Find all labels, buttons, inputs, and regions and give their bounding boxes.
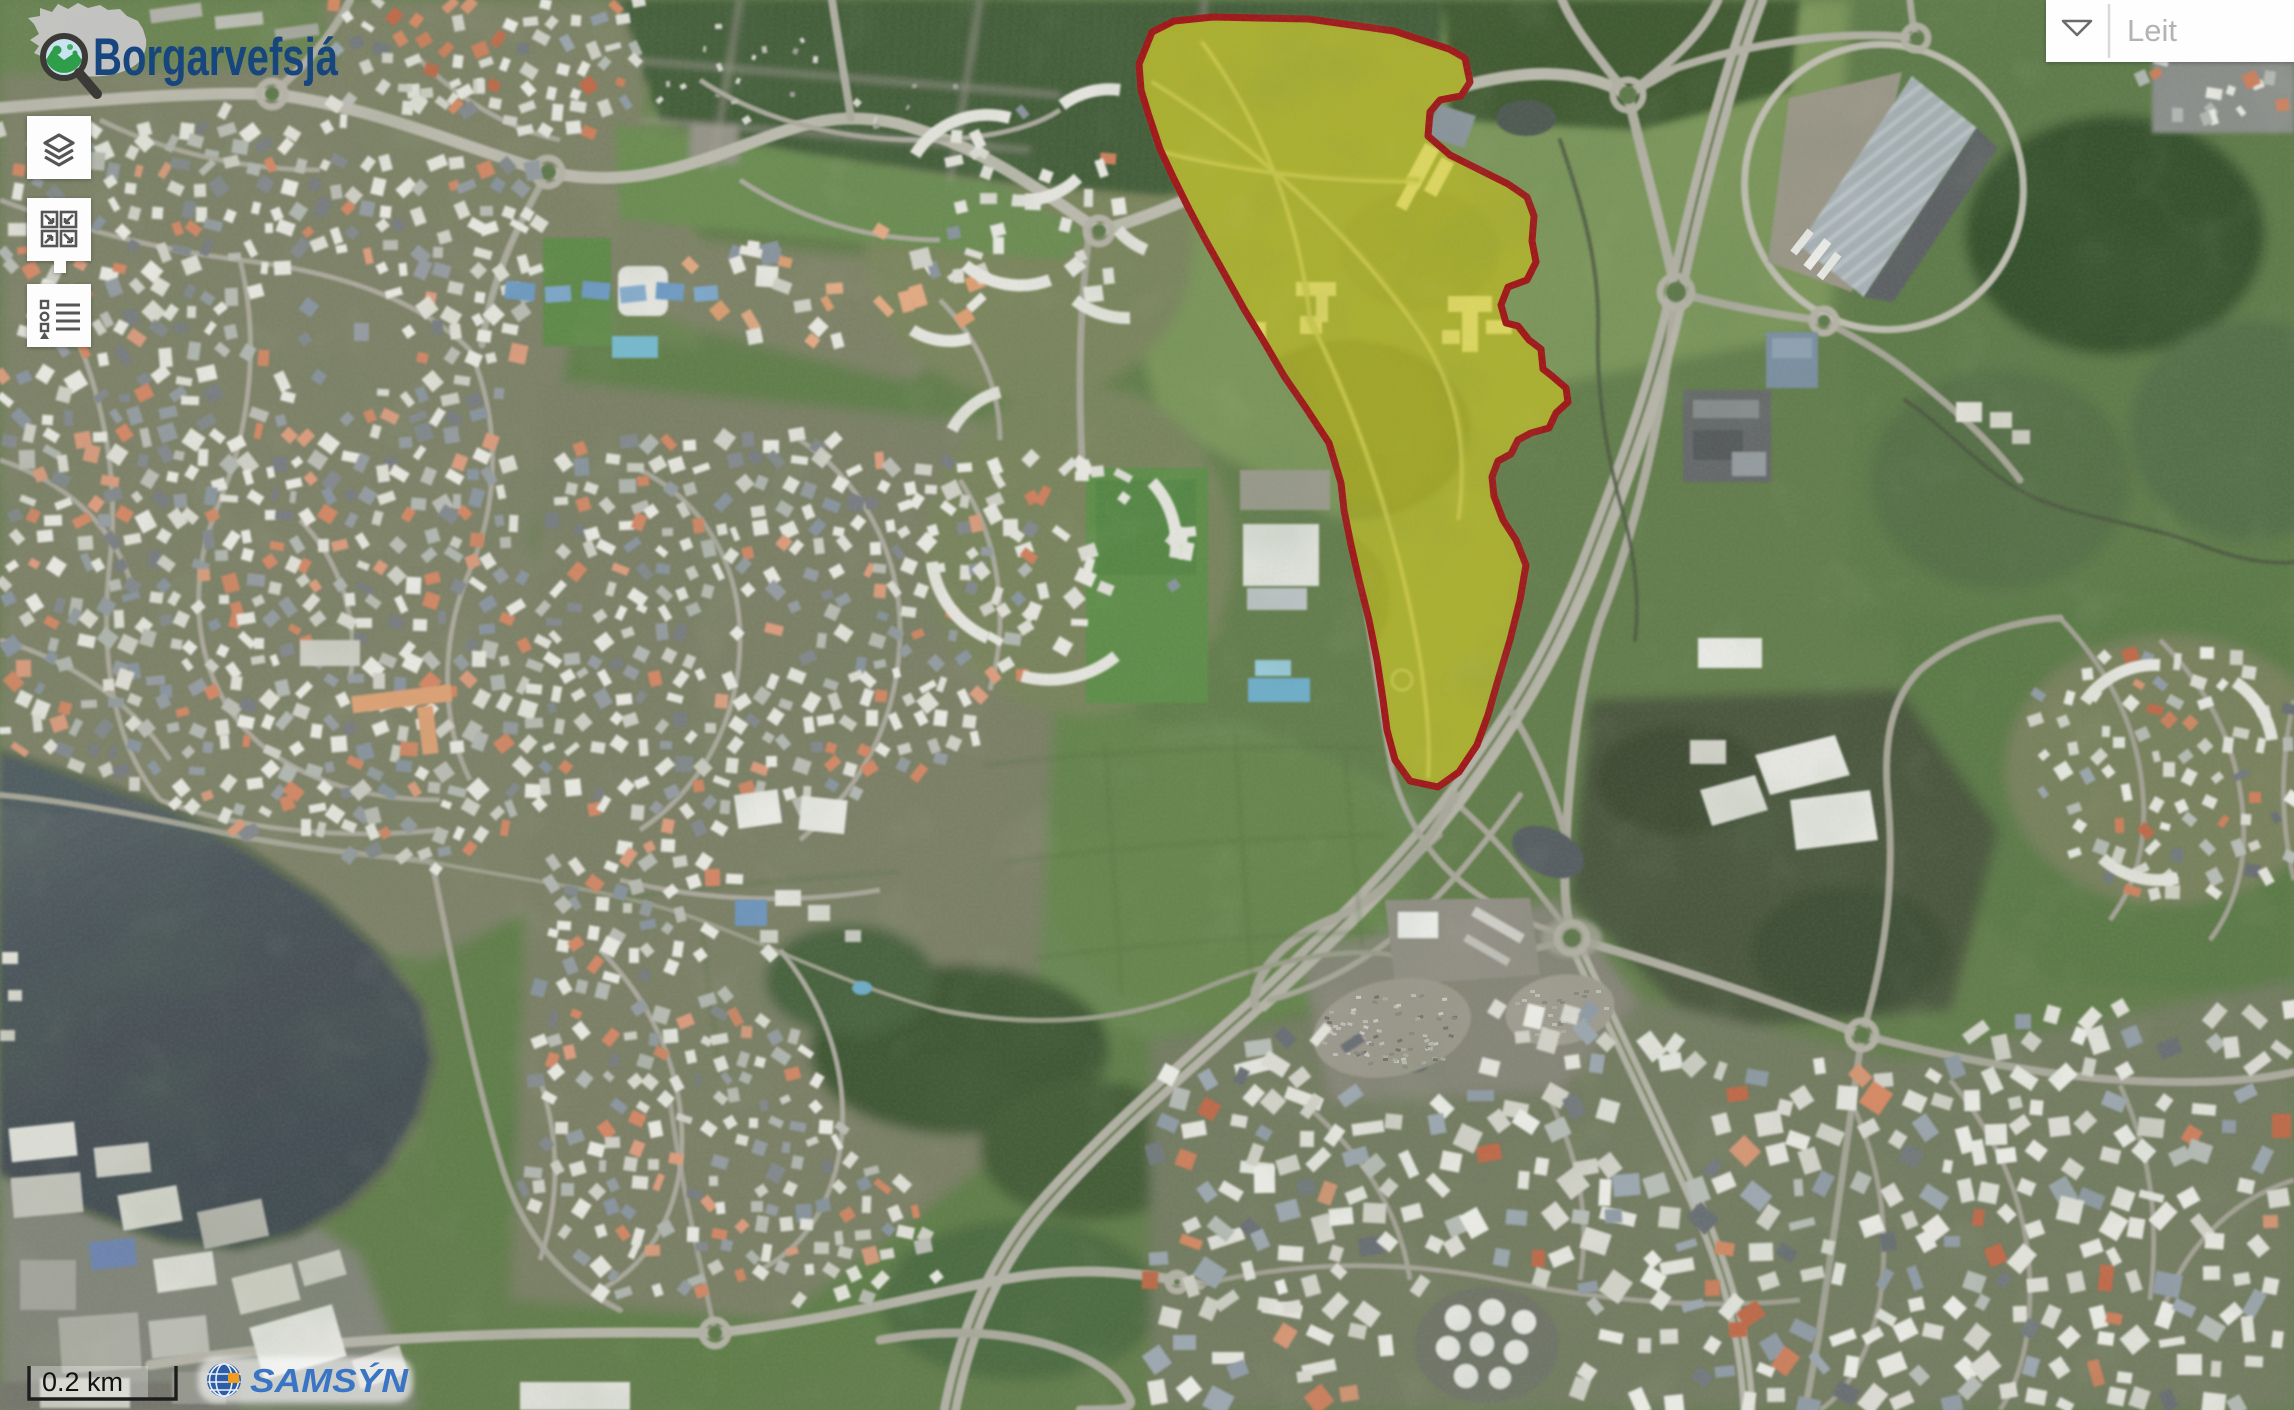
svg-text:Borgarvefsjá: Borgarvefsjá: [93, 28, 338, 87]
svg-text:SAMSÝN: SAMSÝN: [250, 1362, 409, 1399]
svg-text:0.2 km: 0.2 km: [42, 1367, 123, 1397]
svg-text:Leit: Leit: [2127, 13, 2177, 48]
